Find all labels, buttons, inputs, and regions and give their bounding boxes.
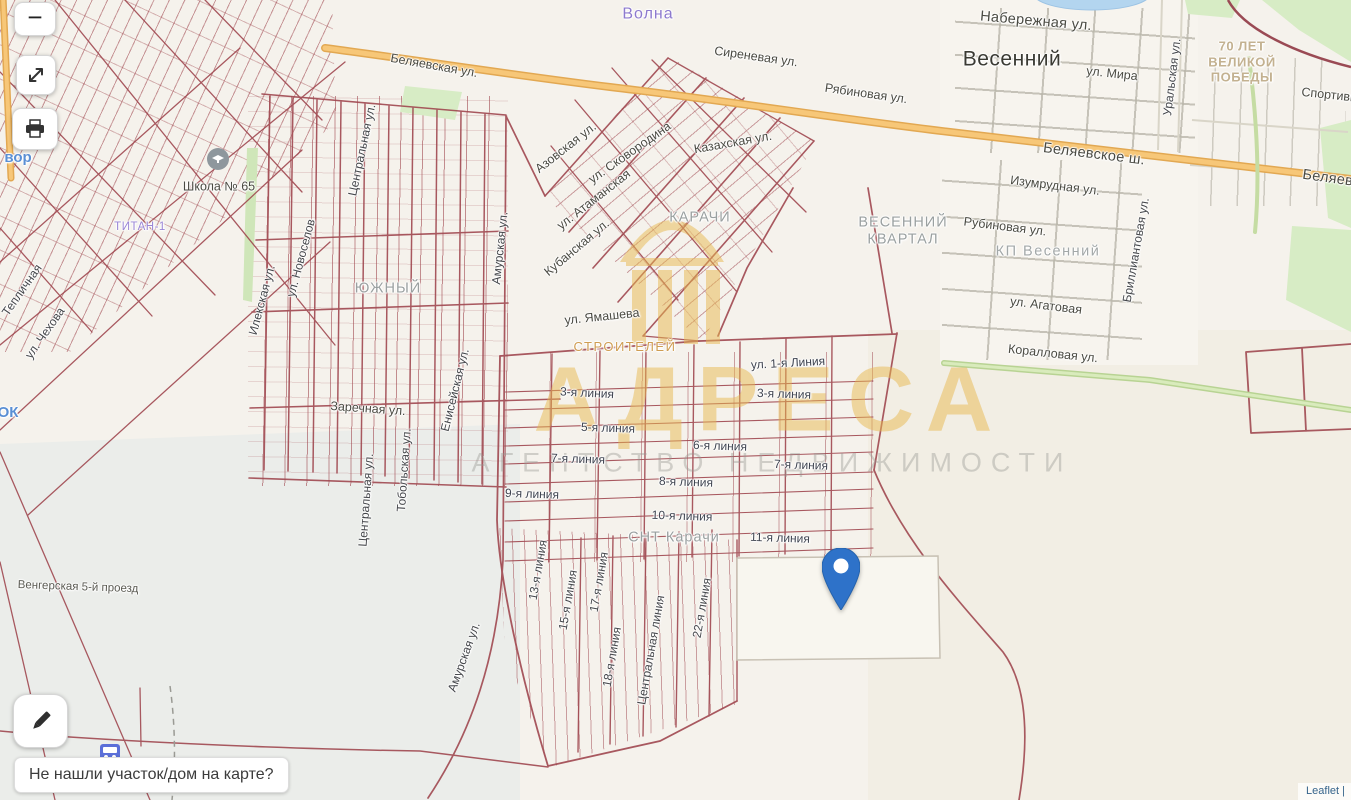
- label-korallovaya-ul: Коралловая ул.: [1007, 342, 1098, 366]
- label-11-liniya: 11-я линия: [750, 530, 810, 546]
- label-ul-mira: ул. Мира: [1086, 64, 1139, 84]
- label-ul-skovorodina: ул. Сковородина: [586, 119, 674, 187]
- label-ul-agatovaya: ул. Агатовая: [1009, 294, 1083, 318]
- map-attribution[interactable]: Leaflet |: [1298, 783, 1351, 800]
- label-belyaevskoe-east: Беляевское: [1301, 167, 1351, 196]
- parcels-fill-center-diagonal: [540, 54, 820, 346]
- label-kazahskaya-ul: Казахская ул.: [693, 129, 773, 157]
- label-ul-atamanskaya: ул. Атаманская: [554, 167, 633, 234]
- label-5-proezd: Венгерская 5-й проезд: [17, 579, 138, 597]
- vesenniy-street-lines: [1158, 0, 1348, 176]
- map-labels-layer: ВолнаСиреневая ул.Рябиновая ул.Беляевска…: [0, 0, 1351, 800]
- label-8-liniya: 8-я линия: [659, 474, 714, 490]
- label-ul-chehova: ул. Чехова: [22, 305, 68, 362]
- east-fields-area: [868, 330, 1351, 800]
- label-10-liniya: 10-я линия: [651, 508, 712, 525]
- label-vesenniy-kvartal: ВЕСЕННИЙ КВАРТАЛ: [858, 215, 947, 250]
- label-poi-vor: вор: [4, 149, 31, 167]
- label-7-liniya-w: 7-я линия: [551, 451, 606, 467]
- green-areas: [243, 0, 1351, 332]
- label-ul-1-liniya: ул. 1-я Линия: [751, 354, 826, 372]
- label-17-liniya: 17-я линия: [587, 551, 612, 613]
- label-azovskaya-ul: Азовская ул.: [532, 120, 599, 177]
- location-pin[interactable]: [822, 548, 860, 610]
- label-5-liniya: 5-я линия: [581, 420, 636, 436]
- label-sportivnaya: Спортивная: [1301, 85, 1351, 107]
- label-belyaevskoe-sh: Беляевское ш.: [1042, 140, 1146, 170]
- label-vesenniy: Весенний: [963, 46, 1062, 71]
- label-9-liniya: 9-я линия: [505, 486, 560, 502]
- label-stroiteley: СТРОИТЕЛЕЙ: [574, 339, 677, 355]
- label-yuzhny: ЮЖНЫЙ: [355, 280, 421, 297]
- parcels-fill-northwest: [0, 0, 340, 352]
- label-naberezhnaya-ul: Набережная ул.: [979, 8, 1092, 35]
- map-vector-layer: [0, 0, 1351, 800]
- highway-belyayevskoye: [3, 0, 1351, 179]
- parcels-fill-snt-lower: [497, 528, 739, 772]
- streets-fill-vesenniy-north: [955, 8, 1195, 153]
- label-6-liniya: 6-я линия: [693, 438, 748, 454]
- label-tsentralnaya-ul-n: Центральная ул.: [345, 103, 379, 197]
- label-15-liniya: 15-я линия: [556, 569, 581, 631]
- label-zarechnaya-ul: Заречная ул.: [330, 399, 406, 419]
- label-shkola-65: Школа № 65: [183, 180, 255, 195]
- watermark-subtitle: АГЕНТСТВО НЕДВИЖИМОСТИ: [472, 448, 1073, 479]
- label-brilliantovaya-ul: Бриллиантовая ул.: [1120, 196, 1153, 303]
- label-7-liniya-e: 7-я линия: [774, 457, 829, 473]
- label-tsentralnaya-liniya: Центральная линия: [634, 594, 667, 706]
- label-18-liniya: 18-я линия: [600, 626, 625, 688]
- label-tobolskaya-ul: Тобольская ул.: [394, 428, 414, 513]
- label-uralskaya-ul: Уральская ул.: [1160, 38, 1184, 117]
- green-road: [944, 58, 1351, 410]
- label-titan: ТИТАН-1: [114, 221, 166, 235]
- printer-icon: [23, 118, 47, 140]
- label-belyaevskaya-ul-west: Беляевская ул.: [389, 51, 478, 81]
- label-amurskaya-ul-n: Амурская ул.: [489, 211, 511, 285]
- red-road-northeast: [1228, 0, 1351, 67]
- label-kubanskaya-ul: Кубанская ул.: [541, 216, 612, 279]
- school-icon: [207, 148, 229, 170]
- pencil-icon: [27, 707, 55, 735]
- label-sirenevaya-ul: Сиреневая ул.: [713, 44, 798, 71]
- streets-fill-vesenniy-south: [942, 160, 1142, 360]
- minus-icon: −: [27, 2, 42, 33]
- label-amurskaya-ul-s: Амурская ул.: [445, 620, 484, 694]
- label-ul-yamasheva: ул. Ямашева: [564, 306, 640, 329]
- watermark-title: АДРЕСА: [534, 348, 1007, 453]
- streets-fill-pobedy: [1190, 58, 1346, 206]
- expand-arrows-icon: [25, 64, 47, 86]
- label-ryabinovaya-ul: Рябиновая ул.: [824, 81, 908, 107]
- watermark-logo: [620, 220, 724, 344]
- label-3-liniya-e: 3-я линия: [757, 386, 812, 402]
- label-13-liniya: 13-я линия: [526, 539, 551, 601]
- label-70-let-velikoy-pobedy: 70 ЛЕТ ВЕЛИКОЙ ПОБЕДЫ: [1208, 39, 1275, 86]
- label-ul-novoselov: ул. Новоселов: [284, 217, 319, 298]
- not-found-prompt-text: Не нашли участок/дом на карте?: [29, 766, 274, 784]
- label-kp-vesenniy: КП Весенний: [996, 243, 1101, 260]
- draw-plot-button[interactable]: [13, 694, 68, 748]
- water-body: [1034, 0, 1150, 10]
- label-volna: Волна: [622, 4, 673, 23]
- label-ilekskaya-ul: Илекская ул.: [246, 263, 278, 336]
- label-teplichnaya: Тепличная: [0, 261, 45, 318]
- not-found-prompt[interactable]: Не нашли участок/дом на карте?: [14, 757, 289, 793]
- label-tsentralnaya-ul-s: Центральная ул.: [356, 453, 377, 547]
- zoom-out-button[interactable]: −: [14, 2, 56, 36]
- fullscreen-button[interactable]: [16, 55, 56, 95]
- vesenniy-block-bg: [940, 0, 1198, 365]
- map-canvas[interactable]: АДРЕСА АГЕНТСТВО НЕДВИЖИМОСТИ ВолнаСирен…: [0, 0, 1351, 800]
- parcel-boundary-lines: [0, 0, 1351, 800]
- lowland-gray-area: [0, 424, 520, 800]
- label-karachi: КАРАЧИ: [669, 209, 730, 226]
- parcels-fill-snt-grid: [505, 352, 873, 562]
- parcels-fill-yuzhny-strips: [248, 96, 508, 486]
- label-snt-karachi: СНТ Карачи: [628, 529, 720, 546]
- label-22-liniya: 22-я линия: [690, 577, 715, 639]
- label-eniseyskaya-ul: Енисейская ул.: [438, 347, 472, 433]
- label-poi-ok: ОК: [0, 404, 18, 422]
- print-button[interactable]: [12, 108, 58, 150]
- label-rubinovaya-ul: Рубиновая ул.: [963, 214, 1047, 239]
- label-izumrudnaya-ul: Изумрудная ул.: [1009, 173, 1100, 199]
- leaflet-link[interactable]: Leaflet |: [1306, 785, 1345, 797]
- label-3-liniya-w: 3-я линия: [560, 384, 615, 401]
